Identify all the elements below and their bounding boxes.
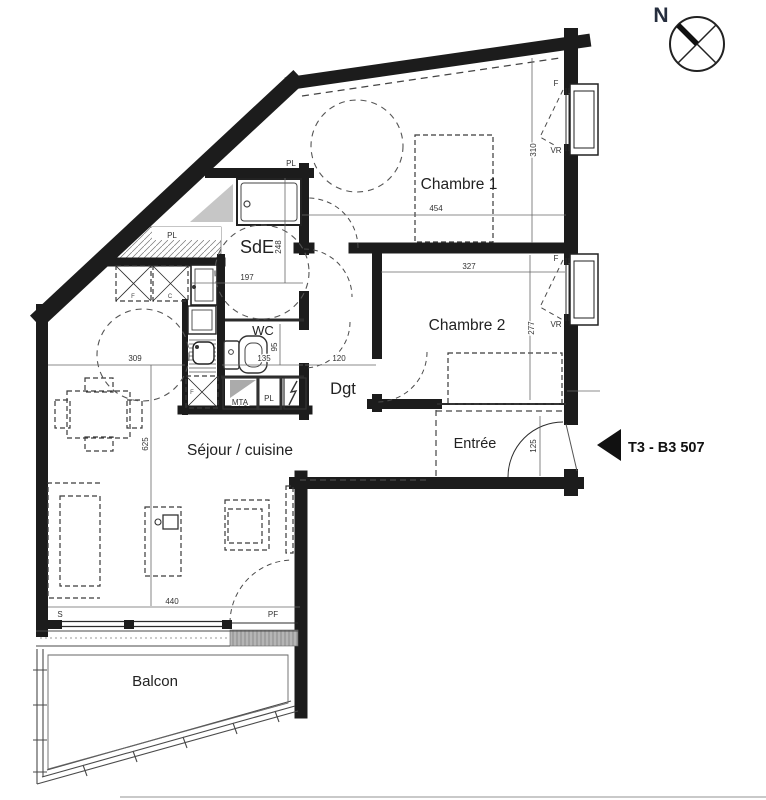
- turning-circle-chambre1: [311, 100, 403, 192]
- label-vr-window2: VR: [550, 320, 561, 329]
- window-swing: [540, 90, 563, 150]
- turning-circle-sejour: [97, 309, 189, 401]
- sofa-seat: [60, 496, 100, 586]
- chair-right: [127, 400, 142, 428]
- rail-ticks-left: [33, 670, 47, 772]
- island-faucet: [155, 519, 161, 525]
- entry-door-jamb-top: [564, 417, 578, 424]
- dim-chambre1-d: 310: [529, 143, 538, 157]
- kitchen-fixtures: [116, 265, 306, 409]
- chair-bottom: [85, 437, 113, 451]
- dining-table: [67, 391, 130, 438]
- mullion-3: [222, 620, 232, 629]
- window-swing: [540, 260, 563, 320]
- label-f-fridge: F: [190, 390, 194, 396]
- sofa-outline: [48, 483, 100, 598]
- label-pl-kitchen: PL: [167, 231, 177, 240]
- island-sink: [163, 515, 178, 529]
- floorplan-page: 454 310 327 277 197 248 135 95 120 309 6…: [0, 0, 766, 800]
- compass-north-letter: N: [653, 4, 668, 27]
- dim-chambre2-d: 277: [527, 321, 536, 335]
- label-s-store: S: [57, 610, 62, 619]
- room-label-wc: WC: [252, 323, 274, 338]
- label-f-window1: F: [554, 79, 559, 88]
- window-chambre2: [540, 254, 598, 325]
- window-chambre1: [540, 84, 598, 155]
- room-label-entree: Entrée: [454, 436, 497, 452]
- fixture-labels: PL PL PL MTA F C F F VR F VR S PF: [57, 79, 561, 619]
- kitchen-closet-label-chip: [152, 227, 221, 240]
- label-f-appliance: F: [131, 294, 135, 300]
- mullion-2: [124, 620, 134, 629]
- room-label-chambre2: Chambre 2: [429, 317, 506, 334]
- room-label-chambre1: Chambre 1: [421, 176, 498, 193]
- sejour-window-lines: [48, 622, 232, 627]
- entry-door-jamb-bottom: [564, 472, 578, 479]
- room-label-sejour: Séjour / cuisine: [187, 442, 293, 459]
- unit-tag: T3 - B3 507: [597, 429, 705, 461]
- room-label-balcon: Balcon: [132, 673, 178, 690]
- chair-left: [55, 400, 70, 428]
- window-glass-lines: [566, 88, 569, 151]
- armchair-seat: [228, 509, 262, 543]
- sde-sloped-gray: [190, 184, 233, 222]
- label-pl-chambre1: PL: [286, 159, 296, 168]
- door-jamb-right: [352, 243, 357, 253]
- wall-top: [292, 41, 584, 83]
- entry-arrow-icon: [597, 429, 621, 461]
- dim-sde-d: 248: [274, 240, 283, 254]
- room-label-dgt: Dgt: [330, 380, 356, 398]
- bathroom-fixtures: [224, 179, 301, 373]
- dim-sejour-d: 625: [141, 437, 150, 451]
- dim-wc-w: 135: [257, 354, 271, 363]
- pf-doormat: [230, 630, 298, 646]
- dim-entree-d: 125: [529, 439, 538, 453]
- floorplan-drawing: 454 310 327 277 197 248 135 95 120 309 6…: [0, 0, 766, 800]
- dim-dgt-w: 120: [332, 354, 346, 363]
- door-jamb-left: [306, 243, 311, 253]
- balcony: [33, 620, 298, 784]
- dim-chambre1-w: 454: [429, 204, 443, 213]
- entry-door-leaf: [566, 424, 577, 471]
- dim-sde-w: 197: [240, 273, 254, 282]
- door-arc-chambre1: [308, 198, 358, 248]
- window-glass-lines: [566, 258, 569, 321]
- dim-sejour-w: 440: [165, 597, 179, 606]
- tall-unit-handle: [192, 285, 196, 289]
- electrical-bolt-icon: [289, 381, 297, 405]
- mta-gray: [230, 380, 256, 398]
- label-vr-window1: VR: [550, 146, 561, 155]
- room-label-sde: SdE: [240, 237, 274, 257]
- label-mta: MTA: [232, 398, 249, 407]
- dim-chambre2-w: 327: [462, 262, 476, 271]
- dimensions: 454 310 327 277 197 248 135 95 120 309 6…: [48, 58, 600, 607]
- door-arc-balcony: [230, 560, 293, 623]
- guide-lines: [97, 58, 564, 480]
- label-pf-door: PF: [268, 610, 278, 619]
- balcony-rail-left: [37, 649, 43, 784]
- unit-label: T3 - B3 507: [628, 440, 705, 456]
- mullion-1: [47, 620, 62, 629]
- door-arc-chambre2: [377, 352, 427, 402]
- compass-north-spoke: [678, 25, 697, 44]
- label-f-window2: F: [554, 254, 559, 263]
- label-c-appliance: C: [168, 294, 173, 300]
- dim-wc-d: 95: [270, 342, 279, 351]
- shower-tray: [237, 179, 301, 225]
- compass: N: [653, 4, 724, 71]
- dim-kitchen-w: 309: [128, 354, 142, 363]
- door-arc-sde: [304, 249, 352, 297]
- balcony-rail-slope: [37, 701, 298, 784]
- radiator: [286, 486, 293, 553]
- bed-chambre2: [448, 353, 562, 404]
- walls: [42, 35, 584, 712]
- label-pl-closet: PL: [264, 394, 274, 403]
- kitchen-faucet: [195, 345, 199, 349]
